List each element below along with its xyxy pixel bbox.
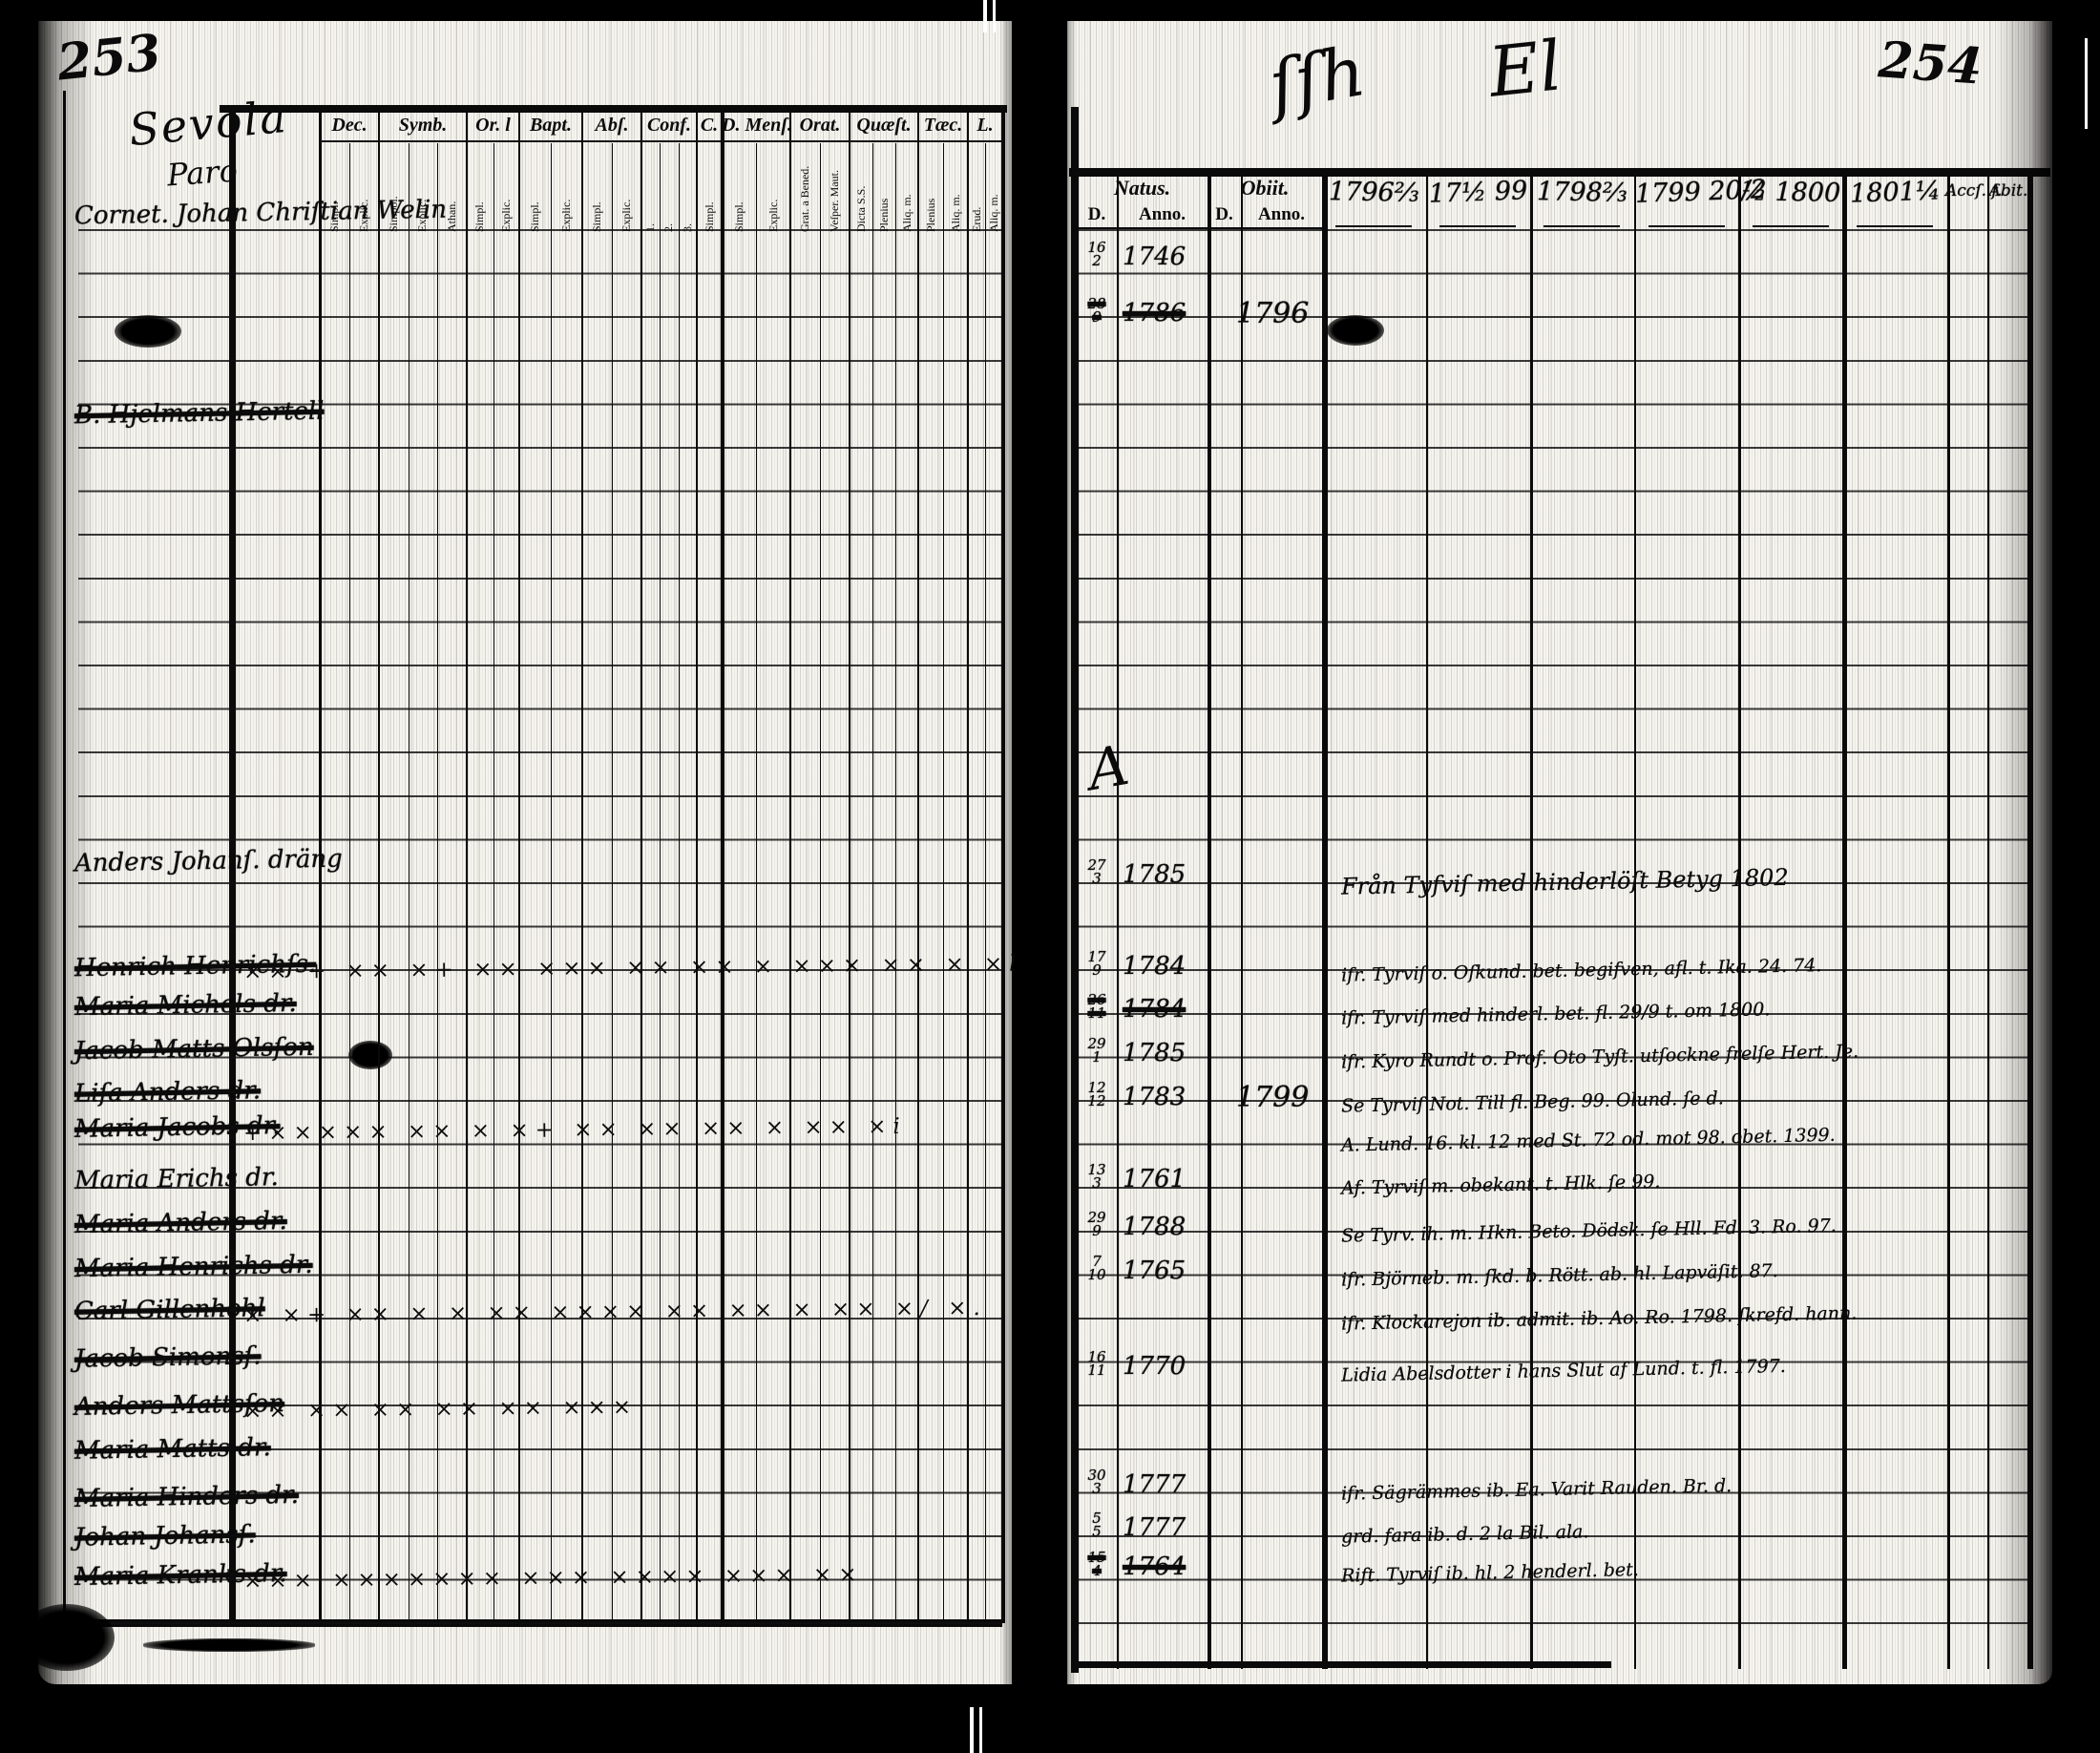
header-sub-label: 2. [663, 144, 674, 232]
birth-date-day: 1212 [1077, 1081, 1117, 1108]
death-year: 1799 [1236, 1081, 1309, 1114]
right-year-column-line [2027, 172, 2033, 1669]
right-year-column-line [1947, 172, 1950, 1669]
year-column-header: 1796⅔ [1322, 177, 1427, 208]
header-group-label: Dec. [320, 110, 379, 142]
birth-date-year: 1788 [1123, 1213, 1186, 1241]
birth-date-year: 1783 [1123, 1083, 1186, 1111]
birth-date-day: 291 [1077, 1037, 1117, 1064]
header-group-label: Abſ. [582, 110, 641, 142]
ledger-entry-name: Carl Gillenhohl [74, 1294, 265, 1325]
year-column-header: ½ 1800 [1739, 177, 1844, 208]
header-sub-label: Explic. [501, 144, 512, 232]
ledger-entry-name: Maria Henrichs dr. [74, 1251, 313, 1283]
header-sub-label: Simpl. [530, 144, 540, 232]
birth-date-day: 710 [1077, 1255, 1117, 1281]
right-year-column-line [1530, 172, 1533, 1669]
header-sub-label: 3. [682, 144, 693, 232]
ink-blot [1327, 315, 1384, 346]
ink-smear [143, 1638, 315, 1652]
birth-date-year: 1770 [1123, 1352, 1186, 1381]
right-natus-obiit-line [1207, 172, 1211, 1669]
left-margin-rule [63, 91, 66, 1657]
header-sub-label: 1. [645, 144, 656, 232]
right-natus-obiit-line [1117, 172, 1119, 1669]
subheader-natus-year: Anno. [1117, 204, 1207, 225]
header-sub-label: Plenius [879, 144, 890, 232]
header-sub-label: Aliq. m. [951, 144, 961, 232]
header-group-qut: Quæſt.Dicta S.S.PleniusAliq. m. [850, 110, 918, 230]
header-sub-label: Dicta S.S. [856, 144, 867, 232]
ledger-entry-name: Jacob Simonsſ. [74, 1341, 262, 1373]
birth-date-year: 1786 [1123, 299, 1186, 327]
right-year-column-line [1987, 172, 1989, 1669]
birth-date-day: 299 [1077, 1211, 1117, 1237]
right-year-column-line [1426, 172, 1428, 1669]
death-year: 1796 [1236, 297, 1309, 330]
column-header-accessit: Accſ. f. [1945, 181, 1989, 201]
header-group-conf: Conf.1.2.3. [641, 110, 697, 230]
year-column-header: 1801¼ [1842, 176, 1947, 209]
header-group-label: Symb. [379, 110, 467, 142]
year-header-underline [1543, 225, 1620, 227]
birth-date-day: 55 [1077, 1511, 1117, 1538]
birth-date-day: 179 [1077, 950, 1117, 977]
header-sub-label: Athan. [447, 144, 457, 232]
year-column-header: 17½ 99 [1425, 176, 1530, 209]
birth-date-year: 1761 [1123, 1165, 1186, 1193]
gutter-scribble-2: El [1485, 25, 1565, 112]
subheader-obiit-year: Anno. [1241, 204, 1322, 225]
year-header-underline [1753, 225, 1829, 227]
birth-date-year: 1784 [1123, 995, 1186, 1024]
ink-blot [19, 1604, 115, 1671]
header-group-c: C.Simpl. [697, 110, 722, 230]
header-sub-label: Plenius [926, 144, 936, 232]
birth-date-day: 154 [1077, 1551, 1117, 1577]
ledger-entry-name: B. Hjelmans Hertell [74, 397, 325, 431]
header-group-label: Quæſt. [850, 110, 918, 142]
right-year-column-line [1738, 172, 1741, 1669]
right-row-lines [1079, 229, 2027, 1666]
header-group-label: C. [697, 110, 722, 142]
right-natus-obiit-line [1241, 172, 1243, 1669]
header-sub-label: Explic. [561, 144, 572, 232]
birth-date-day: 162 [1077, 241, 1117, 267]
birth-date-day: 303 [1077, 1468, 1117, 1495]
column-header-abiit: Abit. [1987, 181, 2029, 201]
header-sub-label: Explic. [768, 144, 779, 232]
ledger-entry-name: Maria Michels dr. [74, 989, 297, 1022]
ledger-entry-name: Maria Matts dr. [74, 1433, 271, 1466]
right-year-column-line [1634, 172, 1636, 1669]
year-header-underline [1648, 225, 1725, 227]
birth-date-day: 1611 [1077, 1350, 1117, 1377]
birth-date-year: 1784 [1123, 952, 1186, 981]
ledger-entry-name: Liſa Anders dr. [74, 1076, 262, 1108]
subheader-obiit-day: D. [1207, 204, 1241, 225]
ledger-entry-name: Maria Hinders dr. [74, 1481, 299, 1513]
ledger-entry-name: Johan Johansſ. [74, 1520, 256, 1552]
ledger-entry-name: Maria Anders dr. [74, 1207, 287, 1239]
column-header-natus: Natus. [1077, 176, 1207, 201]
subheader-natus-day: D. [1077, 204, 1117, 225]
header-group-label: Or. l [467, 110, 519, 142]
birth-date-year: 1746 [1123, 243, 1186, 271]
year-header-underline [1439, 225, 1516, 227]
ledger-entry-name: Jacob Matts Olsſon [74, 1033, 314, 1066]
scanned-church-record-spread: 253 Sevola Paro 254 Natus. Obiit. D. Ann… [0, 0, 2100, 1753]
birth-date-year: 1785 [1123, 1039, 1186, 1067]
header-sub-label: Simpl. [734, 144, 745, 232]
scan-artifact [970, 1707, 974, 1753]
right-year-column-line [1322, 172, 1328, 1669]
header-sub-label: Veſper. Maut. [829, 144, 840, 232]
column-header-obiit: Obiit. [1207, 176, 1322, 201]
year-header-underline [1857, 225, 1933, 227]
scan-artifact [2085, 38, 2088, 129]
birth-date-day: 273 [1077, 858, 1117, 885]
birth-date-year: 1765 [1123, 1257, 1186, 1285]
birth-date-year: 1764 [1123, 1552, 1186, 1581]
header-sub-label: Simpl. [592, 144, 602, 232]
scan-artifact [993, 0, 996, 32]
gutter-scribble-1: ſſh [1263, 31, 1371, 126]
header-group-label: Orat. [790, 110, 850, 142]
header-sub-label: Aliq. m. [989, 144, 999, 232]
year-column-header: 1798⅔ [1530, 177, 1635, 208]
header-sub-label: Simpl. [474, 144, 485, 232]
ink-smudge [348, 1041, 392, 1069]
book-gutter [1000, 0, 1077, 1753]
birth-date-year: 1777 [1123, 1470, 1186, 1499]
ledger-entry-name: Anders Johanſ. dräng [74, 845, 343, 878]
ledger-entry-name: Maria Erichs dr. [74, 1163, 279, 1195]
year-column-header: 1799 20/2 [1634, 176, 1739, 209]
header-sub-label: Grat. a Bened. [800, 144, 810, 232]
right-year-column-line [1842, 172, 1847, 1669]
header-sub-label: Explic. [621, 144, 632, 232]
birth-date-day: 133 [1077, 1163, 1117, 1190]
header-group-label: L. [968, 110, 1002, 142]
header-sub-label: Erud. [972, 144, 982, 232]
header-group-label: D. Menſ. [722, 110, 790, 142]
ink-blot [115, 315, 181, 348]
header-sub-label: Simpl. [704, 144, 715, 232]
birth-date-day: 289 [1077, 297, 1117, 324]
header-group-label: Conf. [641, 110, 697, 142]
header-sub-label: Aliq. m. [902, 144, 913, 232]
birth-date-year: 1785 [1123, 860, 1186, 889]
birth-date-year: 1777 [1123, 1513, 1186, 1542]
year-header-underline [1335, 225, 1412, 227]
birth-date-day: 2611 [1077, 993, 1117, 1020]
scan-artifact [979, 1707, 982, 1753]
left-group-column-line [378, 110, 380, 1623]
scan-artifact [983, 0, 987, 32]
header-group-label: Tæc. [918, 110, 968, 142]
header-group-label: Bapt. [519, 110, 582, 142]
